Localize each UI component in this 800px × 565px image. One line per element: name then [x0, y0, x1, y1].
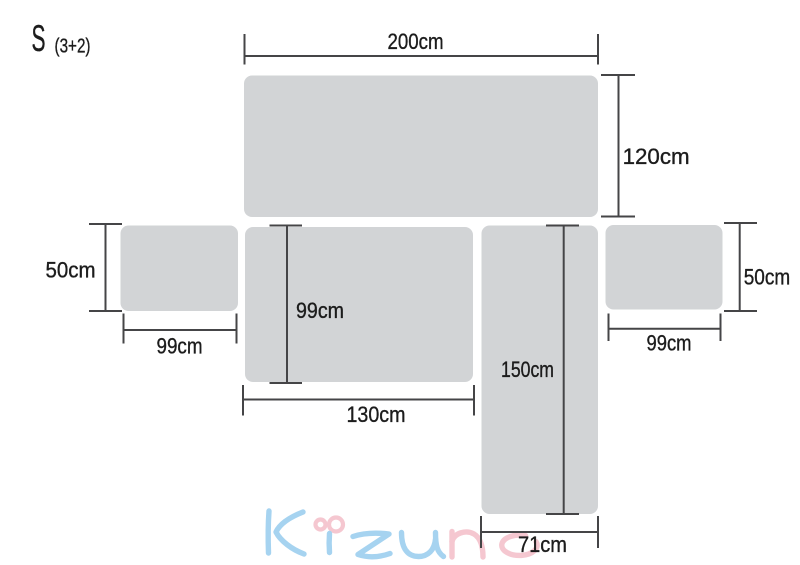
svg-text:120cm: 120cm: [623, 144, 690, 169]
svg-text:99cm: 99cm: [647, 331, 692, 356]
svg-text:71cm: 71cm: [518, 532, 567, 557]
svg-text:50cm: 50cm: [744, 265, 791, 290]
svg-text:99cm: 99cm: [296, 298, 344, 323]
svg-text:50cm: 50cm: [46, 258, 96, 283]
svg-text:S: S: [32, 18, 46, 59]
svg-text:150cm: 150cm: [501, 357, 554, 382]
svg-text:99cm: 99cm: [157, 334, 203, 359]
svg-text:200cm: 200cm: [388, 29, 444, 54]
svg-text:130cm: 130cm: [347, 402, 406, 427]
svg-text:(3+2): (3+2): [55, 36, 91, 58]
